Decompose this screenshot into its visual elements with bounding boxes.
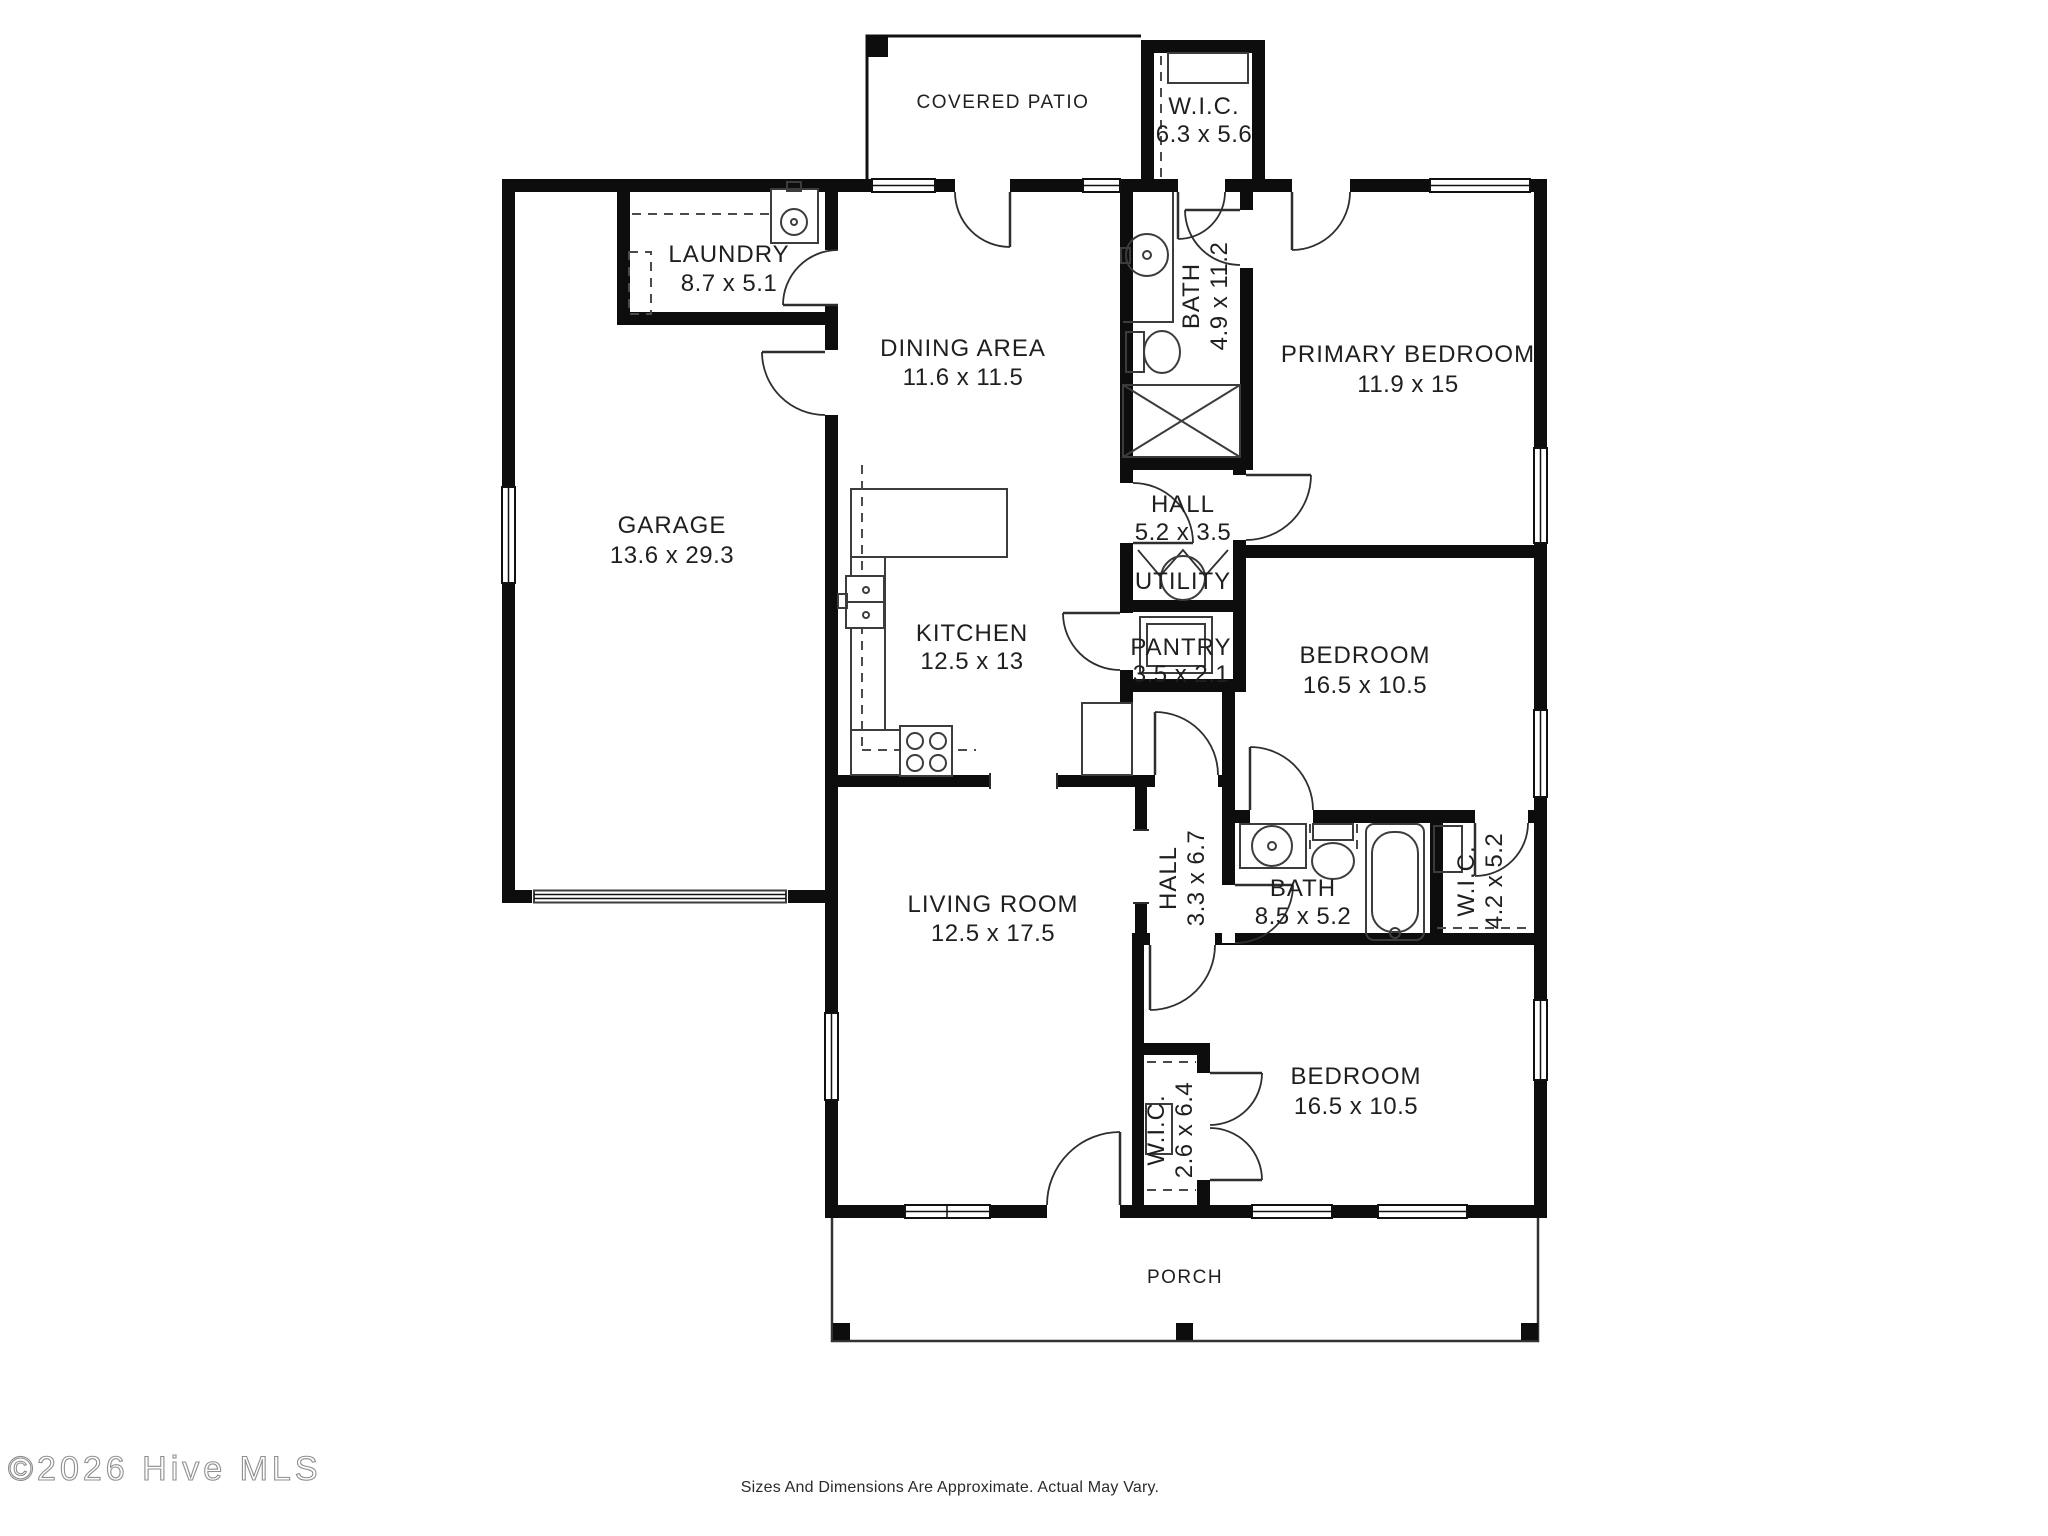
disclaimer-text: Sizes And Dimensions Are Approximate. Ac… — [741, 1479, 1159, 1496]
window — [872, 179, 935, 192]
room-label-primary-bath: BATH 4.9 x 11.2 — [1178, 242, 1233, 351]
window — [1252, 1205, 1332, 1218]
stove — [900, 726, 952, 776]
room-label-bedroom-mid: BEDROOM 16.5 x 10.5 — [1299, 642, 1430, 699]
svg-text:BEDROOM: BEDROOM — [1299, 642, 1430, 669]
svg-text:BATH: BATH — [1270, 875, 1336, 902]
room-label-dining: DINING AREA 11.6 x 11.5 — [880, 335, 1046, 391]
svg-text:12.5 x 17.5: 12.5 x 17.5 — [931, 920, 1055, 947]
floor-plan-page: COVERED PATIO W.I.C. 6.3 x 5.6 LAUNDRY 8… — [0, 0, 2048, 1536]
room-label-garage: GARAGE 13.6 x 29.3 — [610, 512, 734, 569]
svg-text:W.I.C.: W.I.C. — [1453, 845, 1480, 916]
svg-text:PANTRY: PANTRY — [1130, 634, 1231, 661]
room-label-wic-lower: W.I.C. 2.6 x 6.4 — [1143, 1082, 1198, 1179]
svg-text:12.5 x 13: 12.5 x 13 — [920, 648, 1023, 675]
svg-text:13.6 x 29.3: 13.6 x 29.3 — [610, 542, 734, 569]
room-label-pantry: PANTRY 3.5 x 2.1 — [1130, 634, 1231, 688]
room-label-primary-bedroom: PRIMARY BEDROOM 11.9 x 15 — [1281, 341, 1535, 398]
kitchen-sink — [838, 576, 884, 628]
svg-text:3.5 x 2.1: 3.5 x 2.1 — [1133, 661, 1230, 688]
svg-text:8.7 x 5.1: 8.7 x 5.1 — [681, 270, 778, 297]
room-label-hall-lower: HALL 3.3 x 6.7 — [1155, 830, 1210, 927]
room-label-hall-bath: BATH 8.5 x 5.2 — [1255, 875, 1352, 930]
svg-text:LIVING ROOM: LIVING ROOM — [907, 891, 1078, 918]
window — [905, 1205, 990, 1218]
svg-text:6.3 x 5.6: 6.3 x 5.6 — [1156, 121, 1253, 148]
svg-text:HALL: HALL — [1155, 846, 1182, 910]
svg-text:4.2 x 5.2: 4.2 x 5.2 — [1481, 833, 1508, 930]
svg-text:5.2 x 3.5: 5.2 x 3.5 — [1135, 519, 1232, 546]
floor-plan: COVERED PATIO W.I.C. 6.3 x 5.6 LAUNDRY 8… — [0, 0, 2048, 1536]
window — [1534, 448, 1547, 543]
svg-text:BEDROOM: BEDROOM — [1290, 1063, 1421, 1090]
svg-text:HALL: HALL — [1151, 491, 1215, 518]
window — [502, 487, 515, 583]
room-label-laundry: LAUNDRY 8.7 x 5.1 — [668, 241, 789, 297]
svg-text:PRIMARY BEDROOM: PRIMARY BEDROOM — [1281, 341, 1535, 368]
room-label-wic-mid: W.I.C. 4.2 x 5.2 — [1453, 833, 1508, 930]
window — [1083, 179, 1120, 192]
room-label-bedroom-bottom: BEDROOM 16.5 x 10.5 — [1290, 1063, 1421, 1120]
window — [825, 1013, 838, 1100]
svg-text:16.5 x 10.5: 16.5 x 10.5 — [1294, 1093, 1418, 1120]
room-label-porch: PORCH — [1147, 1267, 1223, 1288]
room-label-kitchen: KITCHEN 12.5 x 13 — [916, 620, 1028, 675]
room-label-covered-patio: COVERED PATIO — [917, 92, 1090, 113]
svg-text:11.9 x 15: 11.9 x 15 — [1357, 371, 1458, 398]
fixtures — [629, 53, 1528, 1190]
svg-text:DINING AREA: DINING AREA — [880, 335, 1046, 362]
window — [1430, 179, 1530, 192]
svg-text:11.6 x 11.5: 11.6 x 11.5 — [903, 364, 1024, 391]
svg-text:BATH: BATH — [1178, 263, 1205, 329]
svg-text:LAUNDRY: LAUNDRY — [668, 241, 789, 268]
mls-watermark: ©2026 Hive MLS — [8, 1450, 322, 1488]
room-label-wic-primary: W.I.C. 6.3 x 5.6 — [1156, 93, 1253, 148]
room-label-hall-upper: HALL 5.2 x 3.5 — [1135, 491, 1232, 546]
porch-post-middle — [1176, 1323, 1193, 1340]
svg-text:3.3 x 6.7: 3.3 x 6.7 — [1183, 830, 1210, 927]
refrigerator — [1082, 703, 1132, 775]
svg-text:4.9 x 11.2: 4.9 x 11.2 — [1206, 242, 1233, 351]
porch-post-right — [1521, 1323, 1538, 1340]
svg-text:16.5 x 10.5: 16.5 x 10.5 — [1303, 672, 1427, 699]
room-label-living: LIVING ROOM 12.5 x 17.5 — [907, 891, 1078, 947]
garage-door — [532, 890, 788, 903]
room-labels: COVERED PATIO W.I.C. 6.3 x 5.6 LAUNDRY 8… — [610, 92, 1535, 1288]
svg-text:W.I.C.: W.I.C. — [1168, 93, 1239, 120]
window — [1534, 1000, 1547, 1080]
window — [1534, 710, 1547, 797]
room-label-utility: UTILITY — [1135, 568, 1231, 595]
porch-post-left — [833, 1323, 850, 1340]
window — [1378, 1205, 1467, 1218]
svg-text:KITCHEN: KITCHEN — [916, 620, 1028, 647]
svg-text:8.5 x 5.2: 8.5 x 5.2 — [1255, 903, 1352, 930]
svg-text:W.I.C.: W.I.C. — [1143, 1094, 1170, 1165]
svg-text:2.6 x 6.4: 2.6 x 6.4 — [1171, 1082, 1198, 1179]
svg-text:GARAGE: GARAGE — [618, 512, 727, 539]
